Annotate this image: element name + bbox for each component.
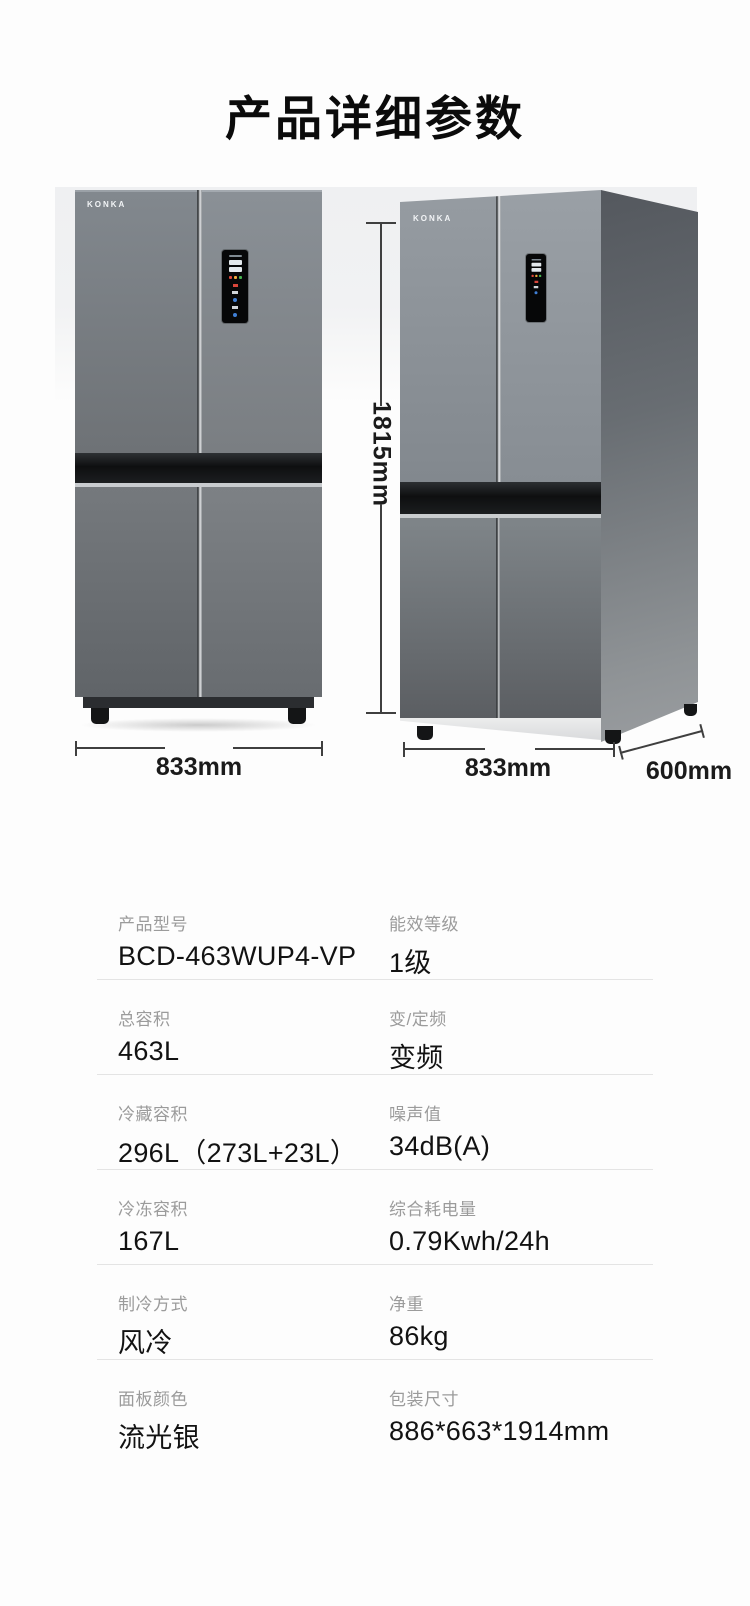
spec-value: BCD-463WUP4-VP bbox=[118, 941, 356, 972]
spec-label: 制冷方式 bbox=[118, 1290, 188, 1315]
spec-label: 噪声值 bbox=[389, 1100, 490, 1125]
fridge-handle-band bbox=[75, 453, 322, 483]
spec-label: 净重 bbox=[389, 1290, 449, 1315]
spec-value: 0.79Kwh/24h bbox=[389, 1226, 550, 1257]
spec-row-fridge-noise: 冷藏容积 296L（273L+23L） 噪声值 34dB(A) bbox=[97, 1075, 653, 1170]
spec-label: 冷藏容积 bbox=[118, 1100, 357, 1125]
konka-brand-logo: KONKA bbox=[413, 214, 452, 223]
depth-dimension-label: 600mm bbox=[633, 757, 745, 786]
spec-value: 296L（273L+23L） bbox=[118, 1131, 357, 1170]
dimension-line bbox=[535, 748, 614, 750]
dimension-tick bbox=[366, 712, 396, 714]
height-dimension-label: 1815mm bbox=[362, 404, 400, 504]
fridge-front-view-image: KONKA bbox=[75, 190, 322, 730]
fridge-shadow bbox=[79, 718, 318, 732]
spec-value: 1级 bbox=[389, 941, 459, 980]
display-panel bbox=[222, 250, 248, 323]
fridge-foot bbox=[288, 708, 306, 724]
spec-value: 463L bbox=[118, 1036, 179, 1067]
dimension-line bbox=[380, 504, 382, 712]
spec-label: 面板颜色 bbox=[118, 1385, 200, 1410]
spec-row-model-energy: 产品型号 BCD-463WUP4-VP 能效等级 1级 bbox=[97, 885, 653, 980]
spec-value: 风冷 bbox=[118, 1321, 188, 1360]
dimension-line bbox=[405, 748, 485, 750]
spec-row-freezer-power: 冷冻容积 167L 综合耗电量 0.79Kwh/24h bbox=[97, 1170, 653, 1265]
page-title: 产品详细参数 bbox=[0, 80, 750, 149]
angled-width-dimension-label: 833mm bbox=[400, 754, 616, 783]
fridge-foot bbox=[417, 726, 433, 740]
konka-brand-logo: KONKA bbox=[87, 200, 126, 209]
spec-value: 86kg bbox=[389, 1321, 449, 1352]
panel-icon bbox=[232, 306, 238, 309]
spec-value: 流光银 bbox=[118, 1416, 200, 1455]
dimension-line bbox=[77, 747, 165, 749]
panel-indicator-blue bbox=[233, 313, 237, 317]
dimension-line bbox=[233, 747, 321, 749]
panel-temperature-display bbox=[228, 260, 243, 272]
fridge-foot bbox=[91, 708, 109, 724]
fridge-angled-view-image: KONKA bbox=[400, 190, 700, 746]
spec-label: 能效等级 bbox=[389, 910, 459, 935]
spec-value: 34dB(A) bbox=[389, 1131, 490, 1162]
fridge-lower-doors bbox=[75, 487, 322, 697]
fridge-foot bbox=[684, 704, 697, 716]
fridge-upper-doors bbox=[75, 190, 322, 453]
spec-table: 产品型号 BCD-463WUP4-VP 能效等级 1级 总容积 463L 变/定… bbox=[97, 885, 653, 1455]
fridge-handle-band bbox=[400, 482, 601, 514]
spec-row-color-package: 面板颜色 流光银 包装尺寸 886*663*1914mm bbox=[97, 1360, 653, 1455]
panel-icon bbox=[232, 291, 238, 294]
spec-row-capacity-frequency: 总容积 463L 变/定频 变频 bbox=[97, 980, 653, 1075]
spec-value: 167L bbox=[118, 1226, 188, 1257]
spec-label: 冷冻容积 bbox=[118, 1195, 188, 1220]
front-width-dimension-label: 833mm bbox=[75, 753, 323, 782]
panel-indicator-blue bbox=[233, 298, 237, 302]
panel-indicator-red bbox=[233, 284, 238, 287]
panel-mode-indicators bbox=[222, 276, 248, 279]
dimension-line bbox=[380, 224, 382, 406]
spec-label: 包装尺寸 bbox=[389, 1385, 609, 1410]
spec-label: 产品型号 bbox=[118, 910, 356, 935]
fridge-side-panel bbox=[601, 190, 698, 742]
spec-label: 变/定频 bbox=[389, 1005, 447, 1030]
spec-row-cooling-weight: 制冷方式 风冷 净重 86kg bbox=[97, 1265, 653, 1360]
spec-label: 综合耗电量 bbox=[389, 1195, 550, 1220]
spec-label: 总容积 bbox=[118, 1005, 179, 1030]
spec-value: 886*663*1914mm bbox=[389, 1416, 609, 1447]
product-detail-page: 产品详细参数 KONKA bbox=[0, 0, 750, 1606]
display-panel bbox=[526, 254, 546, 322]
spec-value: 变频 bbox=[389, 1036, 447, 1075]
panel-brand-mark bbox=[229, 255, 242, 257]
